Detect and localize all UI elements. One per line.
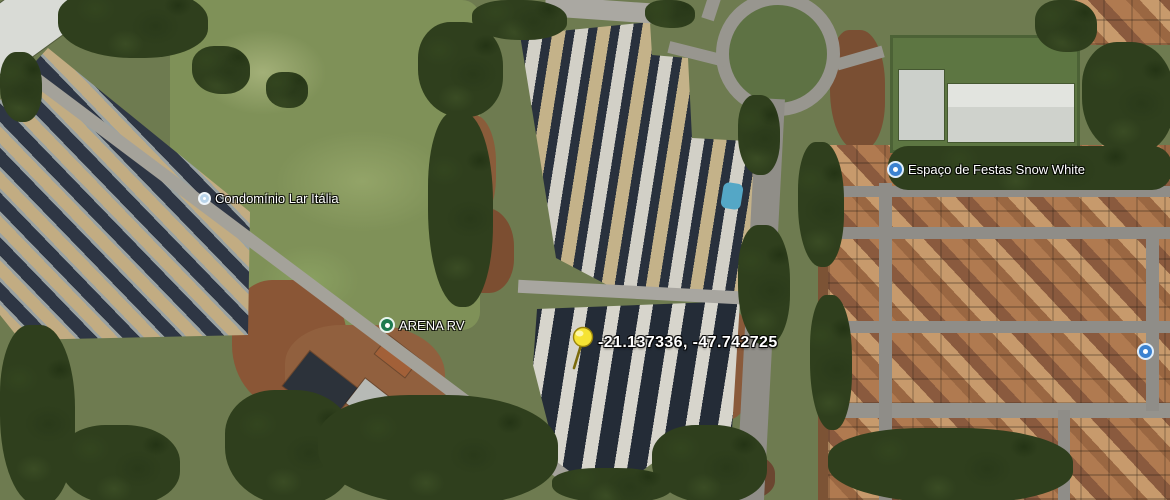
pushpin-icon[interactable] — [566, 326, 596, 370]
satellite-map-view[interactable]: Condomínio Lar Itália ARENA RV Espaço de… — [0, 0, 1170, 500]
placemark[interactable]: -21.137336, -47.742725 — [566, 326, 778, 370]
trees-patch — [0, 52, 42, 122]
trees-patch — [472, 0, 567, 40]
trees-patch — [552, 468, 672, 500]
blue-poi-dot-icon — [1137, 343, 1154, 360]
trees-patch — [810, 295, 852, 430]
trees-patch — [318, 395, 558, 500]
venue-main-building — [948, 84, 1074, 142]
venue-side-building — [899, 70, 944, 140]
trees-patch — [418, 22, 503, 117]
road-arm-north — [701, 0, 723, 21]
poi-label: Condomínio Lar Itália — [215, 191, 339, 206]
poi-condominio-lar-italia[interactable]: Condomínio Lar Itália — [198, 191, 339, 206]
trees-patch — [738, 95, 780, 175]
trees-patch — [645, 0, 695, 28]
trees-patch — [798, 142, 844, 267]
trees-patch — [1035, 0, 1097, 52]
coordinates-label: -21.137336, -47.742725 — [598, 334, 778, 352]
trees-patch — [266, 72, 308, 108]
poi-espaco-de-festas-snow-white[interactable]: Espaço de Festas Snow White — [887, 161, 1085, 178]
trees-patch — [428, 112, 493, 307]
trees-patch — [828, 428, 1073, 500]
trees-patch — [1082, 42, 1170, 154]
pale-poi-dot-icon — [198, 192, 211, 205]
street-vertical — [1146, 233, 1159, 411]
trees-patch — [58, 0, 208, 58]
swimming-pool — [720, 182, 744, 211]
poi-label: ARENA RV — [399, 318, 465, 333]
blue-poi-dot-icon — [887, 161, 904, 178]
poi-label: Espaço de Festas Snow White — [908, 162, 1085, 177]
poi-arena-rv[interactable]: ARENA RV — [379, 317, 465, 333]
trees-patch — [60, 425, 180, 500]
trees-patch — [192, 46, 250, 94]
poi-right-edge[interactable] — [1137, 343, 1158, 360]
green-poi-dot-icon — [379, 317, 395, 333]
